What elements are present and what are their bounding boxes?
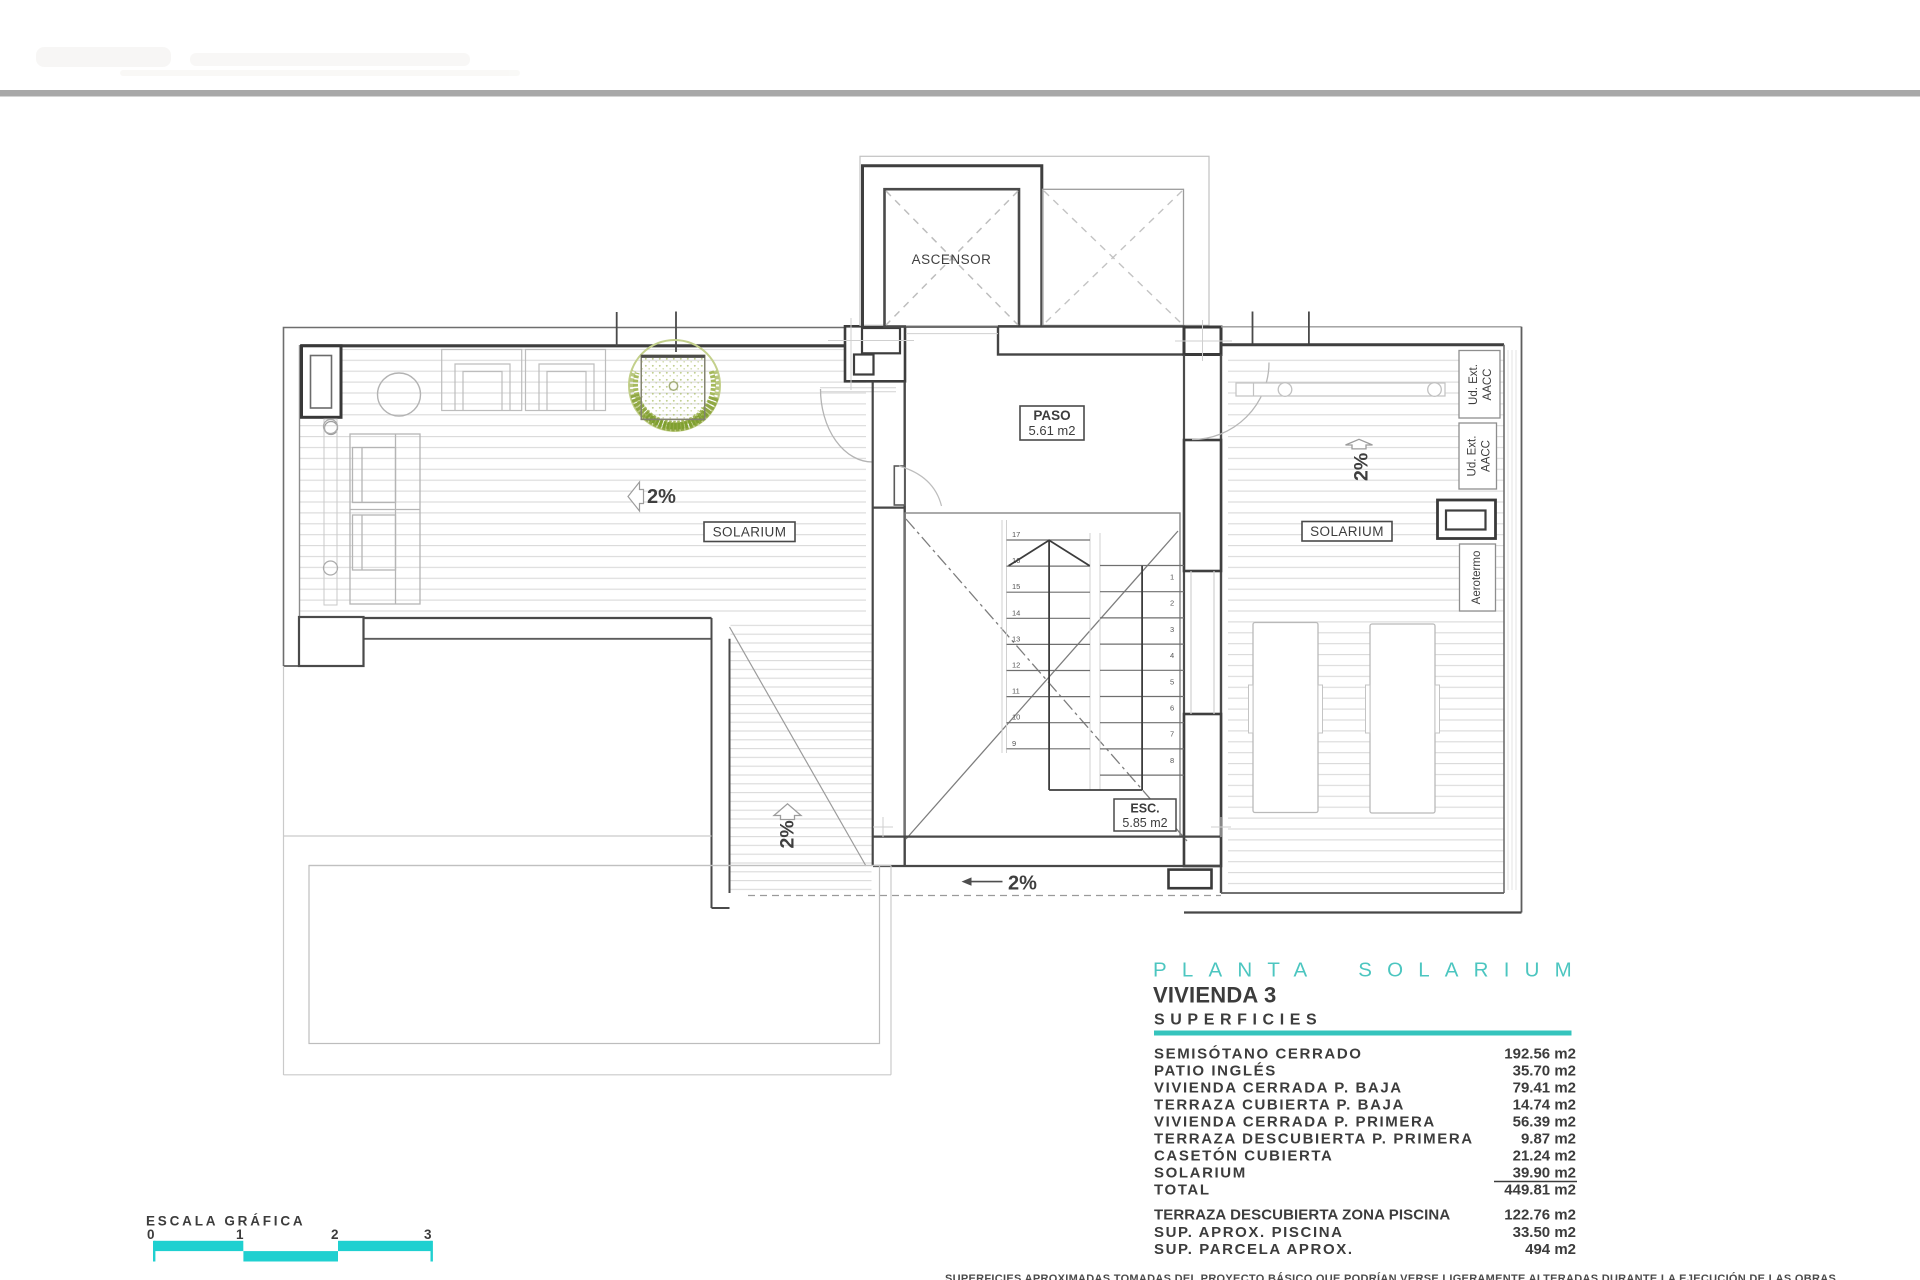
svg-text:5: 5 (1170, 677, 1174, 686)
svg-text:SOLARIUM: SOLARIUM (1310, 524, 1384, 539)
svg-text:6: 6 (1170, 704, 1174, 713)
svg-text:1: 1 (236, 1227, 244, 1242)
svg-text:ESCALA GRÁFICA: ESCALA GRÁFICA (146, 1214, 305, 1229)
svg-text:SUPERFICIES APROXIMADAS TOMADA: SUPERFICIES APROXIMADAS TOMADAS DEL PROY… (945, 1272, 1836, 1280)
svg-text:SOLARIUM: SOLARIUM (1154, 1165, 1247, 1182)
svg-text:56.39 m2: 56.39 m2 (1513, 1114, 1576, 1131)
svg-text:12: 12 (1012, 661, 1020, 670)
svg-text:35.70 m2: 35.70 m2 (1513, 1063, 1576, 1080)
svg-text:192.56 m2: 192.56 m2 (1504, 1046, 1576, 1063)
svg-text:449.81 m2: 449.81 m2 (1504, 1182, 1576, 1199)
svg-text:33.50 m2: 33.50 m2 (1513, 1224, 1576, 1241)
svg-text:TOTAL: TOTAL (1154, 1182, 1211, 1199)
svg-text:2%: 2% (777, 820, 799, 848)
svg-text:SUPERFICIES: SUPERFICIES (1154, 1012, 1322, 1029)
svg-text:7: 7 (1170, 730, 1174, 739)
svg-text:9: 9 (1012, 739, 1016, 748)
svg-text:SEMISÓTANO CERRADO: SEMISÓTANO CERRADO (1154, 1045, 1363, 1063)
svg-text:ASCENSOR: ASCENSOR (912, 252, 992, 267)
svg-text:TERRAZA DESCUBIERTA P. PRIMERA: TERRAZA DESCUBIERTA P. PRIMERA (1154, 1131, 1474, 1148)
svg-text:PATIO INGLÉS: PATIO INGLÉS (1154, 1063, 1277, 1080)
svg-text:AACC: AACC (1481, 440, 1493, 472)
svg-text:2%: 2% (647, 486, 676, 508)
svg-text:39.90 m2: 39.90 m2 (1513, 1165, 1576, 1182)
svg-text:13: 13 (1012, 634, 1020, 643)
svg-text:TERRAZA DESCUBIERTA ZONA PISC: TERRAZA DESCUBIERTA ZONA PISCINA (1154, 1207, 1450, 1224)
svg-text:4: 4 (1170, 651, 1174, 660)
svg-text:17: 17 (1012, 530, 1020, 539)
svg-text:AACC: AACC (1482, 369, 1494, 401)
svg-text:VIVIENDA 3: VIVIENDA 3 (1153, 983, 1276, 1008)
svg-text:2: 2 (1170, 599, 1174, 608)
svg-text:5.85 m2: 5.85 m2 (1122, 816, 1167, 830)
svg-text:2%: 2% (1008, 873, 1037, 895)
svg-text:SUP. PARCELA APROX.: SUP. PARCELA APROX. (1154, 1241, 1354, 1258)
svg-text:21.24 m2: 21.24 m2 (1513, 1148, 1576, 1165)
svg-text:2%: 2% (1351, 453, 1373, 481)
svg-text:122.76 m2: 122.76 m2 (1504, 1207, 1576, 1224)
svg-text:ESC.: ESC. (1130, 802, 1159, 816)
svg-text:SOLARIUM: SOLARIUM (713, 525, 787, 540)
svg-text:Ud. Ext.: Ud. Ext. (1467, 436, 1479, 477)
svg-text:Ud. Ext.: Ud. Ext. (1468, 364, 1480, 405)
svg-text:8: 8 (1170, 756, 1174, 765)
svg-text:14.74 m2: 14.74 m2 (1513, 1097, 1576, 1114)
svg-text:5.61 m2: 5.61 m2 (1029, 423, 1076, 438)
svg-text:PASO: PASO (1033, 408, 1070, 423)
svg-text:2: 2 (331, 1227, 339, 1242)
svg-text:9.87 m2: 9.87 m2 (1521, 1131, 1576, 1148)
svg-text:TERRAZA CUBIERTA P. BAJA: TERRAZA CUBIERTA P. BAJA (1154, 1097, 1405, 1114)
svg-text:14: 14 (1012, 608, 1020, 617)
svg-text:10: 10 (1012, 713, 1020, 722)
svg-text:3: 3 (1170, 625, 1174, 634)
svg-text:79.41 m2: 79.41 m2 (1513, 1080, 1576, 1097)
svg-text:SUP. APROX. PISCINA: SUP. APROX. PISCINA (1154, 1224, 1344, 1241)
svg-text:CASETÓN CUBIERTA: CASETÓN CUBIERTA (1154, 1147, 1334, 1165)
svg-text:VIVIENDA CERRADA P. BAJA: VIVIENDA CERRADA P. BAJA (1154, 1080, 1403, 1097)
svg-text:1: 1 (1170, 573, 1174, 582)
svg-text:494 m2: 494 m2 (1525, 1241, 1576, 1258)
svg-text:11: 11 (1012, 687, 1020, 696)
svg-text:Aerotermo: Aerotermo (1471, 551, 1483, 605)
svg-text:PLANTA SOLARIUM: PLANTA SOLARIUM (1153, 959, 1587, 982)
svg-text:0: 0 (147, 1227, 155, 1242)
svg-text:15: 15 (1012, 582, 1020, 591)
svg-text:VIVIENDA CERRADA P. PRIMERA: VIVIENDA CERRADA P. PRIMERA (1154, 1114, 1436, 1131)
svg-text:3: 3 (424, 1227, 432, 1242)
